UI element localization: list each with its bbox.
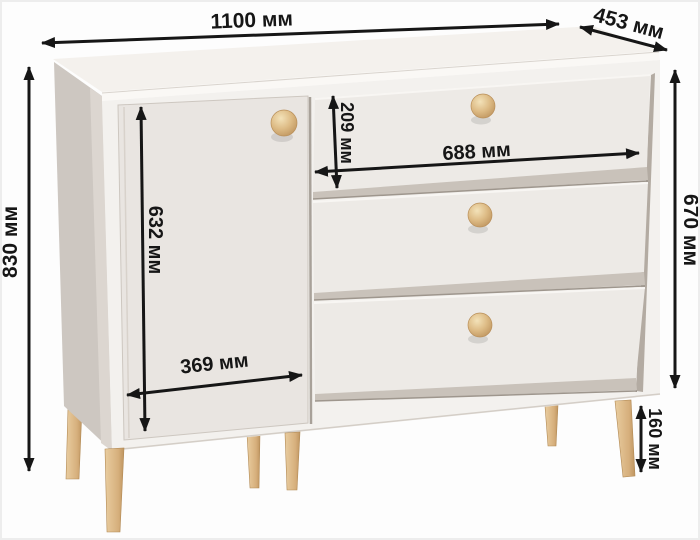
dim-top-drawer-height-label: 209 мм xyxy=(337,102,357,164)
dimension-diagram: 1100 мм 453 мм 830 мм 670 мм 632 мм 369 … xyxy=(0,0,700,540)
drawers xyxy=(313,74,650,401)
door-knob xyxy=(271,110,297,136)
dim-drawer-width-label: 688 мм xyxy=(442,139,512,165)
leg-front-middle xyxy=(285,432,300,490)
door-drawer-divider xyxy=(310,97,311,424)
dim-door-height-label: 632 мм xyxy=(144,206,166,275)
drawer-1-knob xyxy=(471,94,495,118)
diagram-canvas: 1100 мм 453 мм 830 мм 670 мм 632 мм 369 … xyxy=(2,2,700,540)
dim-width-label: 1100 мм xyxy=(210,7,293,33)
dim-body-height-label: 670 мм xyxy=(679,194,700,266)
dim-leg-height-label: 160 мм xyxy=(645,408,665,470)
drawer-2-knob xyxy=(468,203,492,227)
dim-height-label: 830 мм xyxy=(2,206,22,278)
drawer-3-knob xyxy=(468,313,492,337)
